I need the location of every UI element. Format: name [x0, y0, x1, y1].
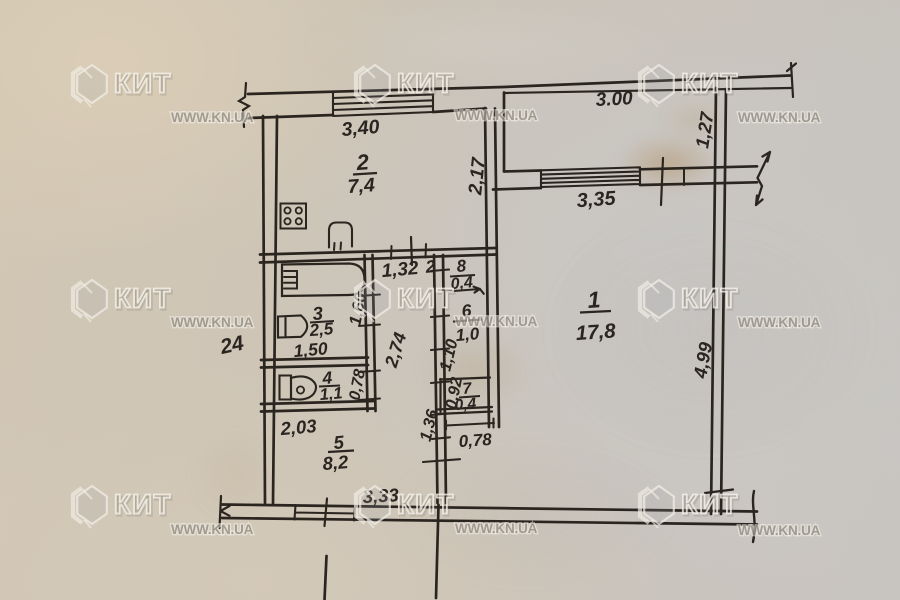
svg-text:2,03: 2,03 — [279, 415, 318, 439]
svg-text:8: 8 — [456, 256, 468, 276]
svg-text:1,32: 1,32 — [381, 258, 420, 282]
svg-text:1: 1 — [587, 286, 602, 313]
svg-text:3,40: 3,40 — [341, 116, 381, 141]
svg-text:7,4: 7,4 — [347, 174, 376, 198]
svg-text:2,5: 2,5 — [308, 319, 335, 340]
svg-text:3.00: 3.00 — [595, 88, 633, 111]
svg-text:2: 2 — [424, 256, 437, 277]
svg-text:2,17: 2,17 — [465, 155, 490, 196]
svg-text:1,1: 1,1 — [319, 384, 343, 404]
svg-text:24: 24 — [217, 331, 246, 359]
svg-text:0,78: 0,78 — [458, 430, 493, 451]
svg-text:1,10: 1,10 — [436, 337, 461, 373]
svg-text:3,35: 3,35 — [576, 187, 617, 212]
svg-text:5: 5 — [333, 431, 346, 453]
svg-text:0,78: 0,78 — [346, 368, 369, 402]
svg-text:1,50: 1,50 — [293, 338, 329, 361]
svg-text:17,8: 17,8 — [575, 319, 617, 345]
svg-text:2: 2 — [355, 149, 371, 175]
svg-text:2,74: 2,74 — [381, 330, 411, 370]
svg-text:1,27: 1,27 — [691, 109, 718, 150]
svg-text:8,2: 8,2 — [322, 451, 350, 474]
